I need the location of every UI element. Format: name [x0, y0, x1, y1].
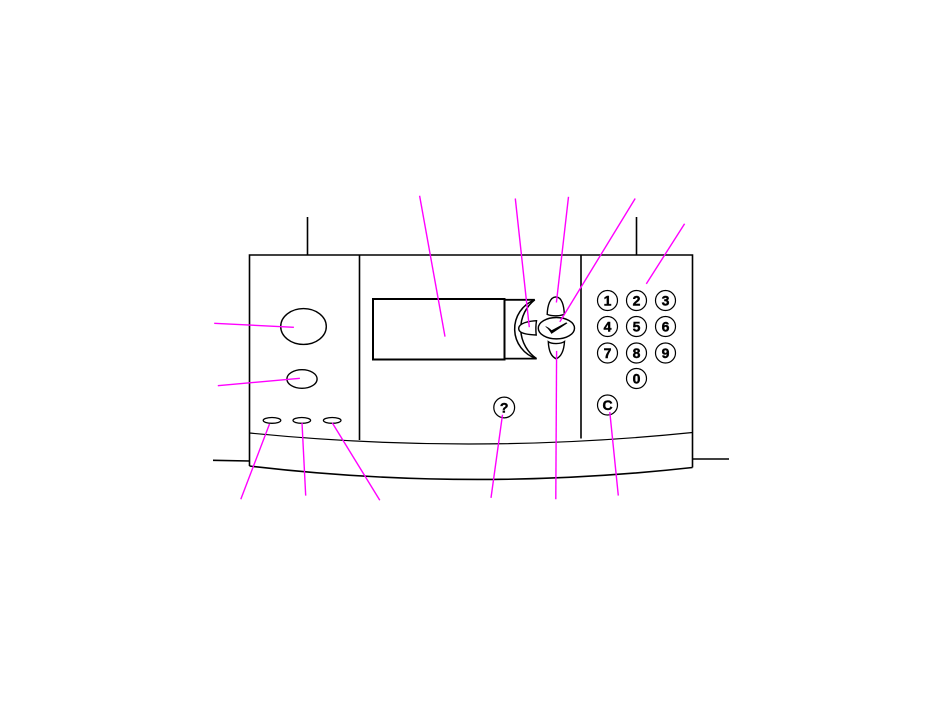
svg-text:C: C — [602, 397, 612, 413]
svg-text:1: 1 — [604, 292, 612, 308]
svg-text:9: 9 — [662, 345, 670, 361]
svg-text:3: 3 — [662, 292, 670, 308]
svg-text:2: 2 — [633, 292, 641, 308]
svg-text:5: 5 — [633, 318, 641, 334]
svg-text:7: 7 — [604, 345, 612, 361]
svg-text:0: 0 — [633, 370, 641, 386]
svg-text:?: ? — [500, 399, 509, 415]
svg-text:4: 4 — [604, 318, 612, 334]
svg-text:6: 6 — [662, 318, 670, 334]
svg-text:8: 8 — [633, 345, 641, 361]
